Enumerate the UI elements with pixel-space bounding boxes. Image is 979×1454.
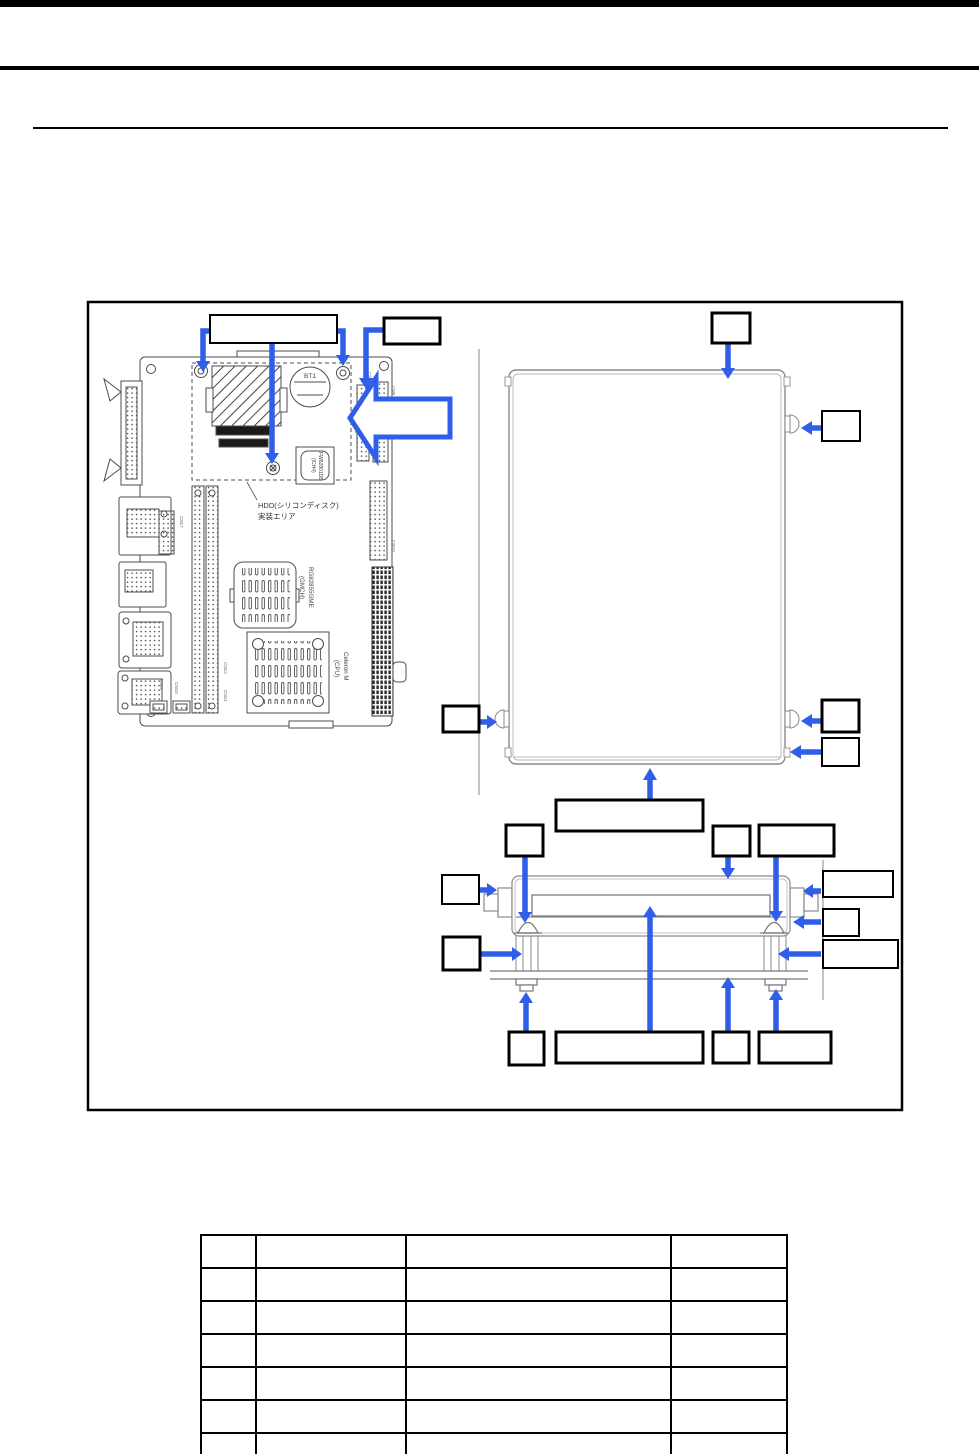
callout-box-6 [822, 700, 859, 732]
callout-box-12 [442, 875, 479, 904]
callout-box-9 [506, 825, 543, 856]
cn17-label: CN17 [179, 516, 184, 528]
callout-box-19 [713, 1032, 749, 1063]
parts-table-cell-r7c1 [201, 1433, 256, 1454]
callout-box-1 [210, 315, 337, 343]
parts-table-cell-r4c2 [256, 1334, 406, 1367]
leader-arrow-head-9 [790, 745, 801, 759]
leader-arrow-head-6 [801, 421, 812, 435]
callout-box-3 [712, 313, 750, 343]
callout-box-16 [823, 940, 898, 968]
parts-table-cell-r6c3 [406, 1400, 671, 1433]
parts-table-cell-r2c1 [201, 1268, 256, 1301]
callout-box-15 [443, 937, 480, 970]
ich-label-line2: (ICH4) [310, 458, 316, 473]
parts-table-cell-r2c4 [671, 1268, 787, 1301]
parts-table-cell-r6c2 [256, 1400, 406, 1433]
manual-page: BT1 HDD(シリコンディスク) 実装エリア RG82855GME (GMCH… [0, 0, 979, 1454]
hdd-area-note-line2: 実装エリア [258, 511, 296, 521]
callout-box-11 [759, 825, 834, 856]
gmch-heatsink [230, 562, 299, 628]
parts-table-row-6 [201, 1400, 787, 1433]
callout-box-7 [822, 738, 859, 766]
parts-table-cell-r1c2 [256, 1235, 406, 1268]
parts-table-cell-r1c1 [201, 1235, 256, 1268]
parts-table-cell-r1c3 [406, 1235, 671, 1268]
parts-table-cell-r3c4 [671, 1301, 787, 1334]
cn12-label: CN12 [223, 662, 228, 674]
callout-box-14 [823, 909, 859, 936]
gmch-label-line2: (GMCH) [298, 576, 305, 599]
parts-table-cell-r3c1 [201, 1301, 256, 1334]
parts-table-cell-r4c4 [671, 1334, 787, 1367]
parts-table-cell-r2c2 [256, 1268, 406, 1301]
parts-table-row-4 [201, 1334, 787, 1367]
bus-edge-connector [372, 567, 406, 716]
callout-box-13 [823, 871, 893, 897]
cn15-label: CN15 [174, 682, 179, 694]
parts-table-cell-r7c2 [256, 1433, 406, 1454]
parts-table-cell-r1c4 [671, 1235, 787, 1268]
parts-table-cell-r5c2 [256, 1367, 406, 1400]
cn14-label: CN14 [159, 678, 164, 690]
cpu-label-line1: Celeron M [342, 652, 349, 681]
chassis-top-view [495, 370, 799, 764]
parts-table-row-7 [201, 1433, 787, 1454]
cn9-label: CN9 [391, 386, 396, 396]
callout-box-20 [759, 1032, 831, 1063]
pcb-left-header-connector [104, 379, 142, 485]
parts-table-cell-r4c3 [406, 1334, 671, 1367]
callout-box-17 [509, 1032, 544, 1065]
parts-table-cell-r5c4 [671, 1367, 787, 1400]
parts-table-cell-r6c1 [201, 1400, 256, 1433]
parts-table-row-1 [201, 1235, 787, 1268]
callout-box-8 [556, 800, 703, 831]
callout-box-4 [822, 411, 860, 441]
parts-table-cell-r2c3 [406, 1268, 671, 1301]
parts-table-cell-r7c3 [406, 1433, 671, 1454]
ich-label-line1: FW82801DB [317, 452, 323, 481]
gmch-label-line1: RG82855GME [307, 567, 314, 608]
leader-arrow-head-19 [519, 992, 533, 1003]
parts-list-table [200, 1234, 788, 1454]
pcb-connector-cn10 [370, 481, 387, 560]
battery-label: BT1 [304, 373, 316, 380]
cn11-label: CN11 [223, 690, 228, 702]
leader-arrow-head-10 [643, 768, 657, 780]
cpu-label-line2: (CPU) [333, 660, 340, 677]
hdd-area-note-line1: HDD(シリコンディスク) [258, 500, 339, 510]
parts-table-cell-r5c3 [406, 1367, 671, 1400]
parts-table-cell-r7c4 [671, 1433, 787, 1454]
parts-table-row-5 [201, 1367, 787, 1400]
leader-arrow-head-18 [778, 947, 789, 961]
parts-table-cell-r5c1 [201, 1367, 256, 1400]
parts-table-cell-r4c1 [201, 1334, 256, 1367]
callout-box-5 [443, 706, 479, 732]
parts-table-row-3 [201, 1301, 787, 1334]
cpu-heatsink [247, 632, 329, 713]
parts-table-cell-r6c4 [671, 1400, 787, 1433]
callout-box-2 [384, 318, 440, 344]
callout-box-18 [556, 1032, 703, 1063]
parts-table-cell-r3c2 [256, 1301, 406, 1334]
leader-arrow-head-8 [801, 714, 812, 728]
parts-table-row-2 [201, 1268, 787, 1301]
cn10-label: CN10 [391, 540, 396, 552]
parts-table-cell-r3c3 [406, 1301, 671, 1334]
callout-box-10 [713, 826, 750, 856]
leader-arrow-head-17 [512, 947, 522, 961]
